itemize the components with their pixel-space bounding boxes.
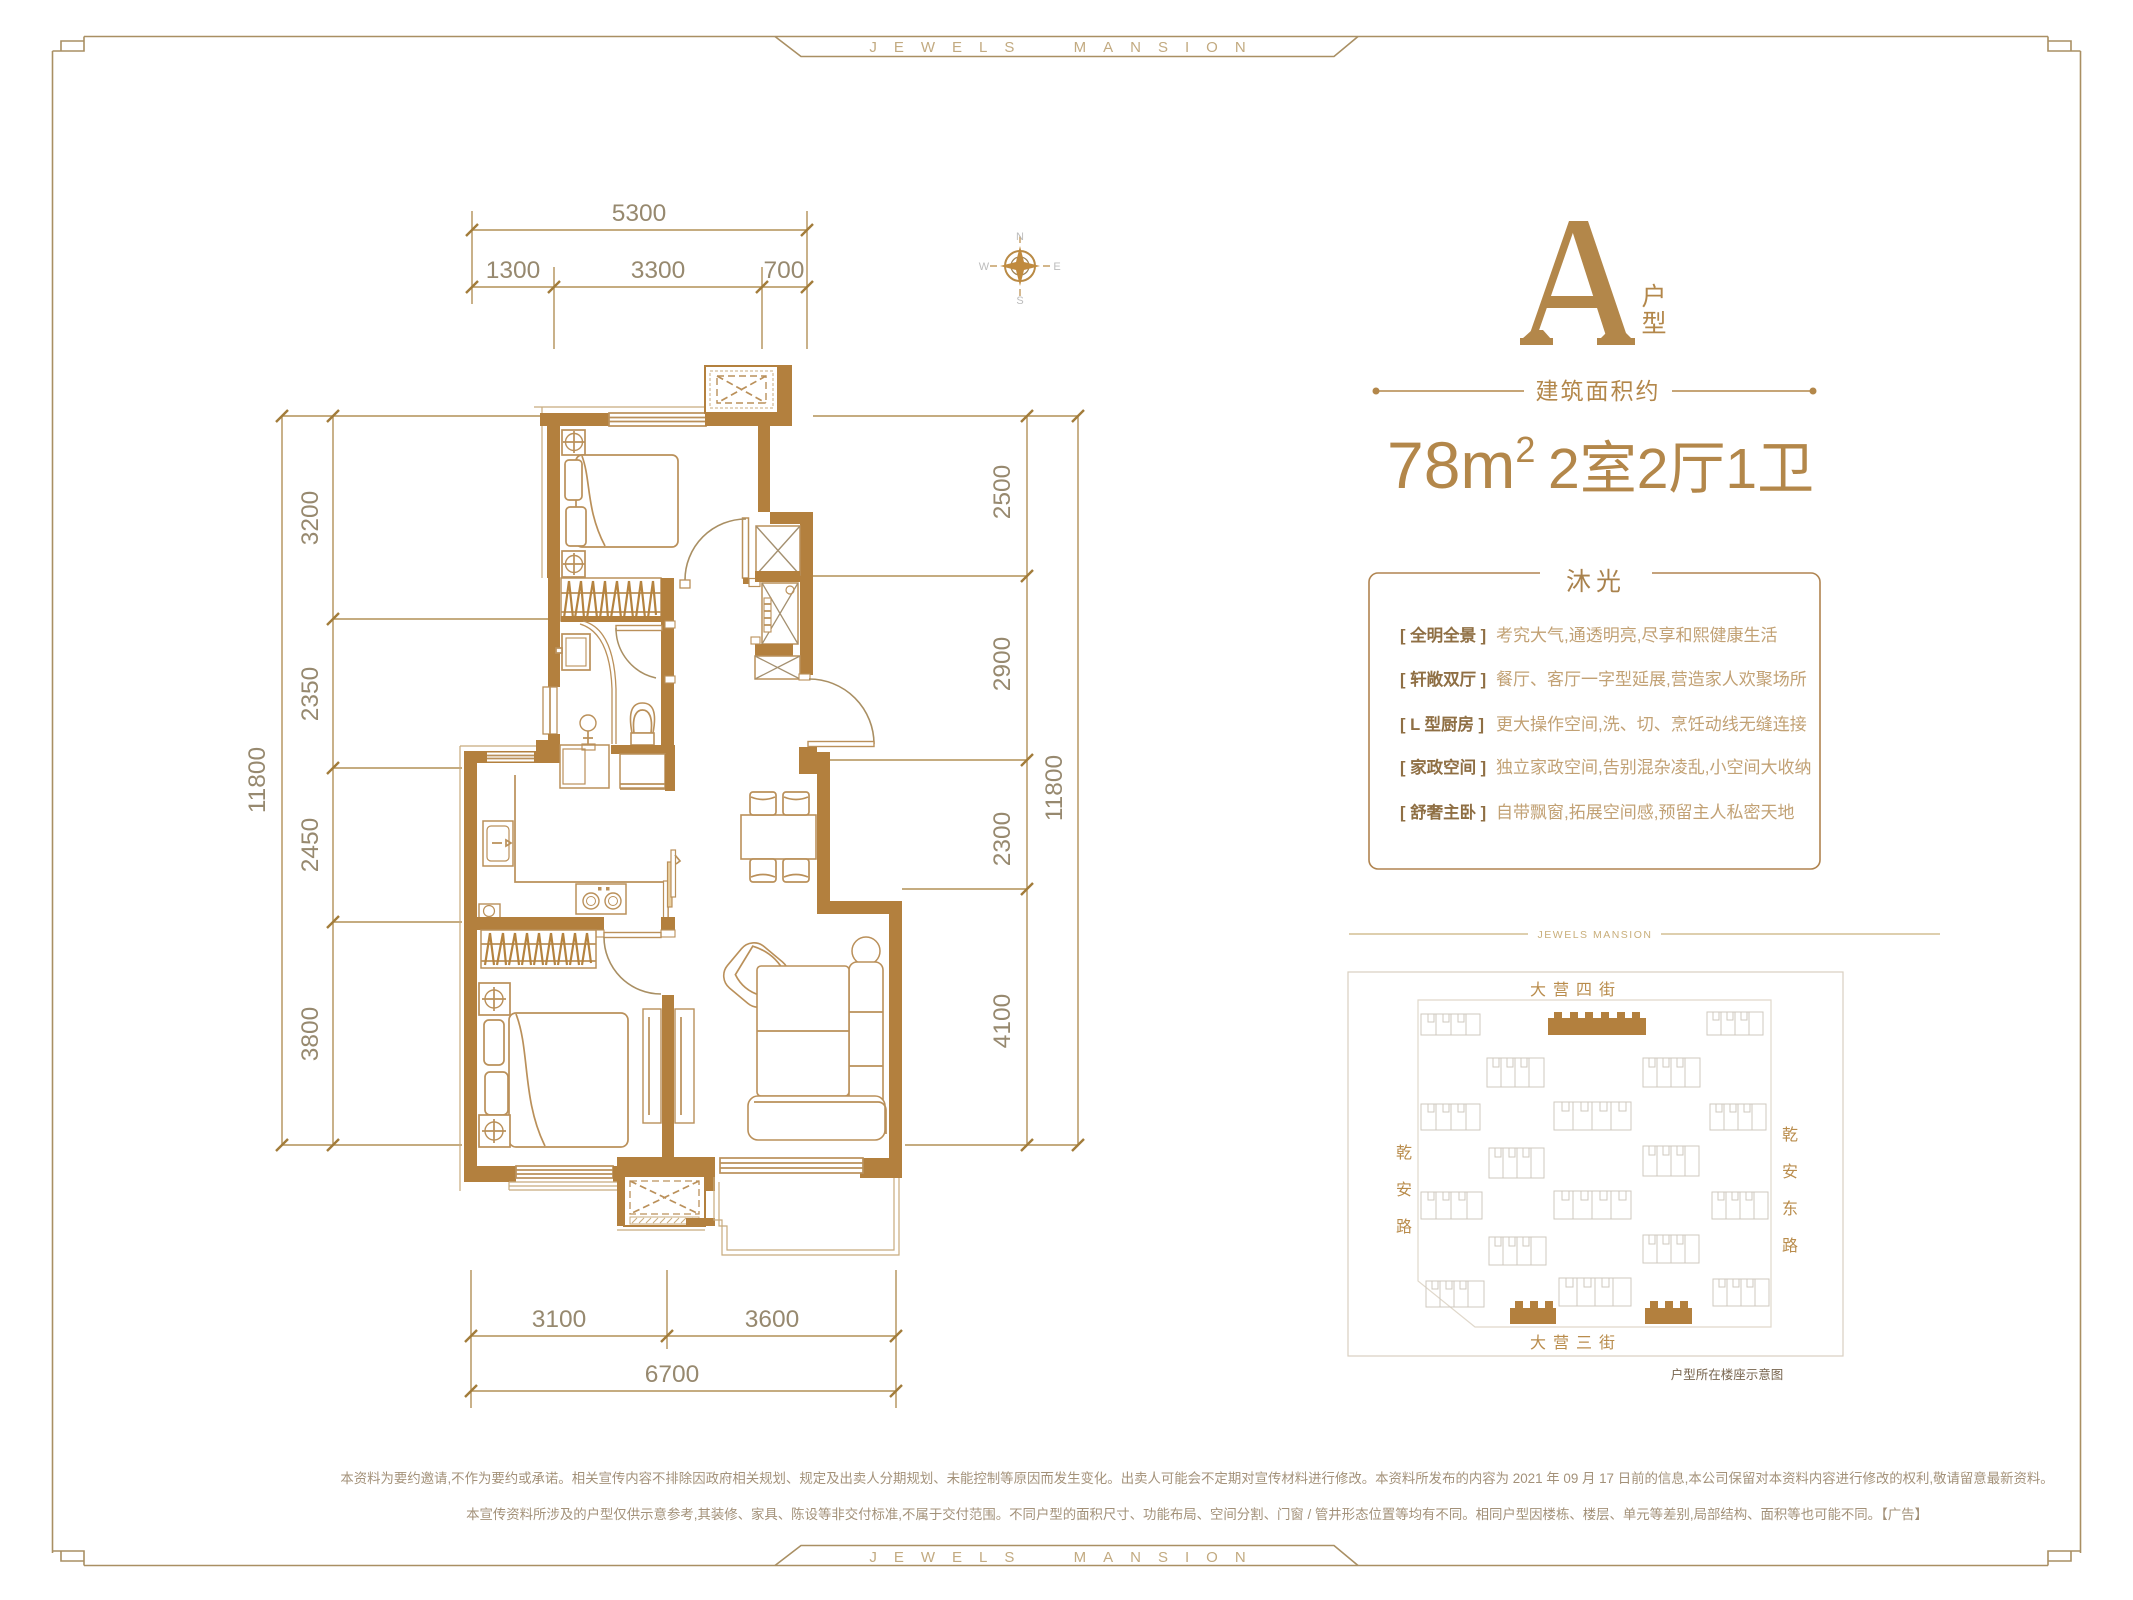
- svg-text:3300: 3300: [631, 257, 686, 284]
- svg-text:更大操作空间,洗、切、烹饪动线无缝连接: 更大操作空间,洗、切、烹饪动线无缝连接: [1496, 714, 1807, 734]
- svg-text:3200: 3200: [297, 491, 324, 546]
- svg-text:考究大气,通透明亮,尽享和熙健康生活: 考究大气,通透明亮,尽享和熙健康生活: [1496, 626, 1777, 645]
- svg-text:2室2厅1卫: 2室2厅1卫: [1548, 437, 1814, 501]
- svg-text:餐厅、客厅一字型延展,营造家人欢聚场所: 餐厅、客厅一字型延展,营造家人欢聚场所: [1496, 670, 1807, 689]
- svg-text:N: N: [1016, 231, 1024, 243]
- svg-text:大营三街: 大营三街: [1530, 1334, 1622, 1352]
- svg-text:2900: 2900: [989, 637, 1016, 692]
- svg-text:JEWELS MANSION: JEWELS MANSION: [869, 1549, 1262, 1566]
- svg-text:2300: 2300: [989, 812, 1016, 867]
- svg-text:3800: 3800: [297, 1007, 324, 1062]
- svg-text:沐光: 沐光: [1566, 568, 1626, 596]
- svg-text:JEWELS MANSION: JEWELS MANSION: [869, 39, 1262, 56]
- svg-text:本资料为要约邀请,不作为要约或承诺。相关宣传内容不排除因政府: 本资料为要约邀请,不作为要约或承诺。相关宣传内容不排除因政府相关规划、规定及出卖…: [340, 1470, 2053, 1486]
- svg-text:路: 路: [1396, 1218, 1412, 1236]
- svg-text:3100: 3100: [532, 1306, 587, 1333]
- svg-text:JEWELS MANSION: JEWELS MANSION: [1538, 929, 1653, 941]
- svg-text:4100: 4100: [989, 994, 1016, 1049]
- svg-text:[ 家政空间 ]: [ 家政空间 ]: [1400, 757, 1486, 777]
- svg-text:[ 舒奢主卧 ]: [ 舒奢主卧 ]: [1400, 802, 1486, 822]
- svg-text:78m2: 78m2: [1387, 428, 1535, 502]
- svg-text:[ L 型厨房 ]: [ L 型厨房 ]: [1400, 714, 1484, 734]
- svg-text:安: 安: [1396, 1181, 1412, 1199]
- svg-text:型: 型: [1641, 310, 1666, 338]
- svg-text:2350: 2350: [297, 667, 324, 722]
- svg-text:3600: 3600: [745, 1306, 800, 1333]
- svg-text:乾: 乾: [1396, 1144, 1412, 1162]
- svg-text:5300: 5300: [612, 200, 667, 227]
- svg-text:安: 安: [1782, 1163, 1798, 1181]
- svg-text:2450: 2450: [297, 818, 324, 873]
- svg-text:E: E: [1053, 261, 1060, 273]
- svg-text:S: S: [1016, 295, 1023, 307]
- svg-text:700: 700: [764, 257, 805, 284]
- svg-text:户: 户: [1641, 283, 1666, 311]
- svg-text:大营四街: 大营四街: [1530, 981, 1622, 999]
- svg-text:2500: 2500: [989, 465, 1016, 520]
- svg-text:[ 轩敞双厅 ]: [ 轩敞双厅 ]: [1400, 669, 1486, 689]
- svg-text:1300: 1300: [486, 257, 541, 284]
- svg-text:户型所在楼座示意图: 户型所在楼座示意图: [1671, 1367, 1784, 1382]
- svg-text:东: 东: [1782, 1200, 1798, 1218]
- svg-text:路: 路: [1782, 1237, 1798, 1255]
- svg-text:11800: 11800: [244, 747, 271, 813]
- svg-text:[ 全明全景 ]: [ 全明全景 ]: [1400, 625, 1486, 645]
- svg-text:乾: 乾: [1782, 1126, 1798, 1144]
- svg-text:11800: 11800: [1041, 755, 1068, 821]
- svg-text:独立家政空间,告别混杂凌乱,小空间大收纳: 独立家政空间,告别混杂凌乱,小空间大收纳: [1496, 758, 1811, 777]
- svg-text:W: W: [979, 261, 990, 273]
- svg-text:本宣传资料所涉及的户型仅供示意参考,其装修、家具、陈设等非交: 本宣传资料所涉及的户型仅供示意参考,其装修、家具、陈设等非交付标准,不属于交付范…: [466, 1506, 1928, 1522]
- svg-text:6700: 6700: [645, 1361, 700, 1388]
- svg-text:自带飘窗,拓展空间感,预留主人私密天地: 自带飘窗,拓展空间感,预留主人私密天地: [1496, 803, 1794, 822]
- svg-text:建筑面积约: 建筑面积约: [1536, 378, 1661, 404]
